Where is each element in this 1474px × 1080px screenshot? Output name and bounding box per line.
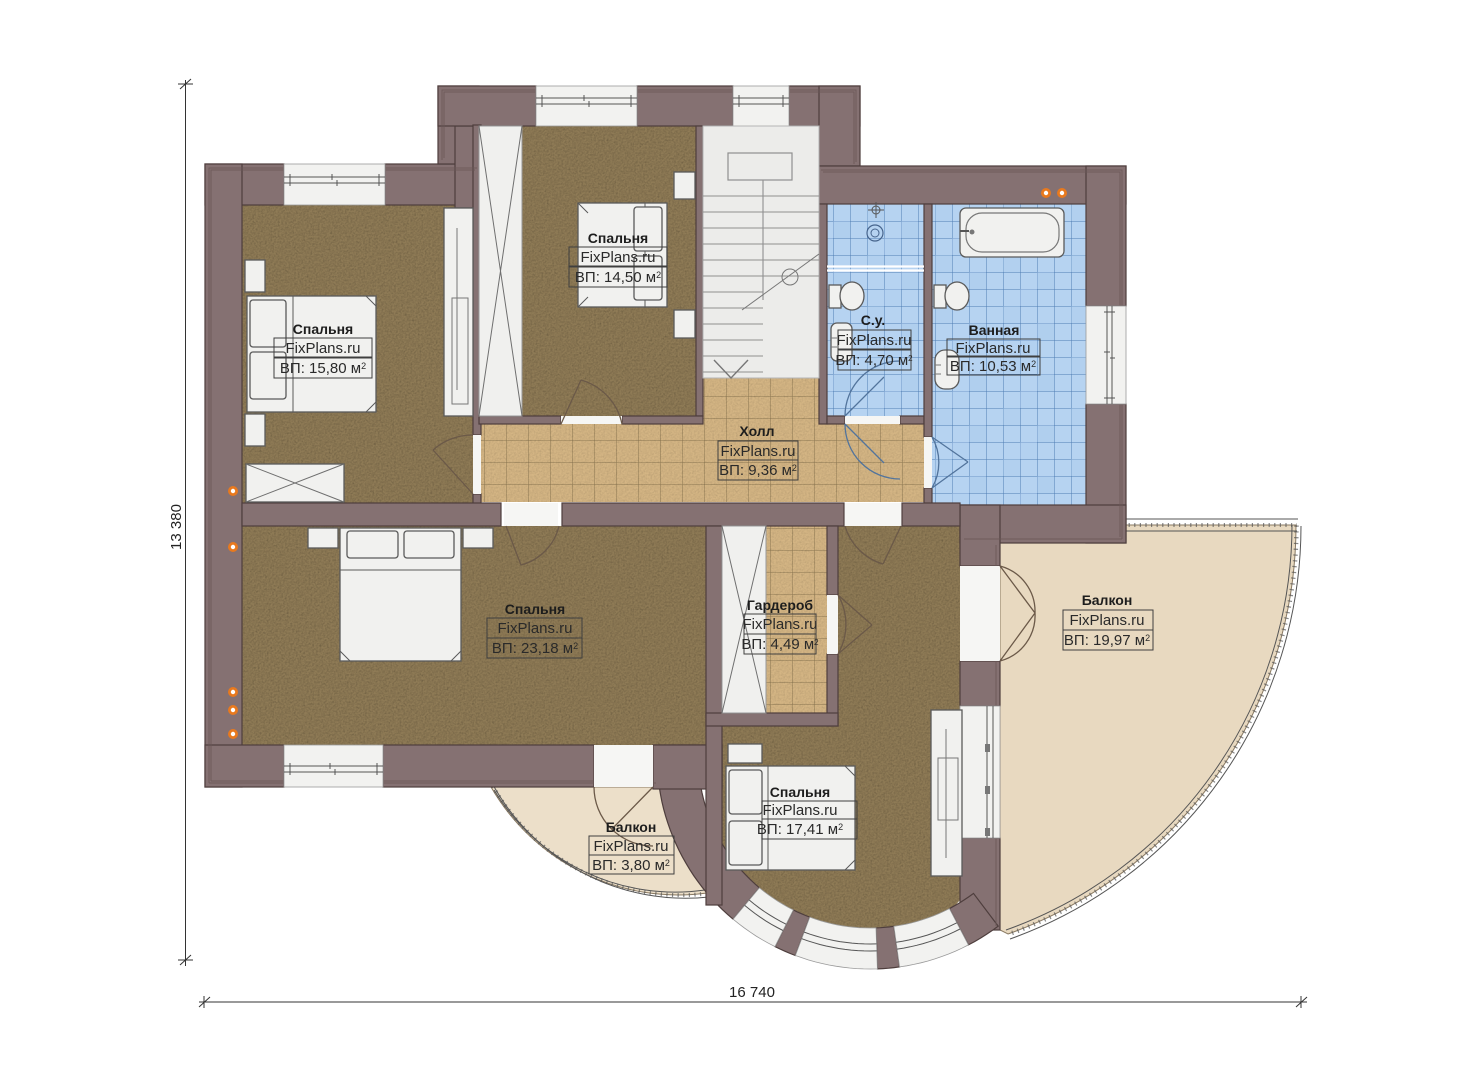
svg-text:FixPlans.ru: FixPlans.ru — [285, 340, 360, 357]
svg-text:Спальня: Спальня — [293, 321, 353, 337]
svg-text:ВП: 4,70 м2: ВП: 4,70 м2 — [835, 352, 913, 369]
svg-text:ВП: 17,41 м2: ВП: 17,41 м2 — [757, 821, 843, 838]
svg-text:Спальня: Спальня — [588, 230, 648, 246]
svg-text:ВП: 14,50 м2: ВП: 14,50 м2 — [575, 269, 661, 286]
svg-text:FixPlans.ru: FixPlans.ru — [762, 802, 837, 819]
svg-text:ВП: 10,53 м2: ВП: 10,53 м2 — [950, 358, 1036, 375]
svg-text:ВП: 15,80 м2: ВП: 15,80 м2 — [280, 360, 366, 377]
svg-text:С.у.: С.у. — [861, 312, 885, 328]
svg-text:FixPlans.ru: FixPlans.ru — [836, 332, 911, 349]
svg-text:ВП: 3,80 м2: ВП: 3,80 м2 — [592, 857, 670, 874]
svg-text:ВП: 4,49 м2: ВП: 4,49 м2 — [741, 636, 819, 653]
svg-text:13 380: 13 380 — [168, 504, 185, 550]
svg-text:16 740: 16 740 — [729, 984, 775, 1001]
svg-text:FixPlans.ru: FixPlans.ru — [1069, 612, 1144, 629]
svg-text:Спальня: Спальня — [770, 784, 830, 800]
svg-text:FixPlans.ru: FixPlans.ru — [742, 616, 817, 633]
svg-text:ВП: 9,36 м2: ВП: 9,36 м2 — [719, 462, 797, 479]
svg-text:ВП: 23,18 м2: ВП: 23,18 м2 — [492, 640, 578, 657]
svg-text:FixPlans.ru: FixPlans.ru — [497, 620, 572, 637]
svg-text:ВП: 19,97 м2: ВП: 19,97 м2 — [1064, 632, 1150, 649]
svg-text:FixPlans.ru: FixPlans.ru — [593, 838, 668, 855]
svg-text:Ванная: Ванная — [969, 322, 1020, 338]
svg-text:Балкон: Балкон — [1082, 592, 1133, 608]
svg-text:Балкон: Балкон — [606, 819, 657, 835]
svg-text:FixPlans.ru: FixPlans.ru — [580, 249, 655, 266]
svg-text:FixPlans.ru: FixPlans.ru — [955, 340, 1030, 357]
svg-text:Гардероб: Гардероб — [747, 597, 814, 613]
svg-text:Холл: Холл — [739, 423, 774, 439]
svg-text:FixPlans.ru: FixPlans.ru — [720, 443, 795, 460]
svg-text:Спальня: Спальня — [505, 601, 565, 617]
